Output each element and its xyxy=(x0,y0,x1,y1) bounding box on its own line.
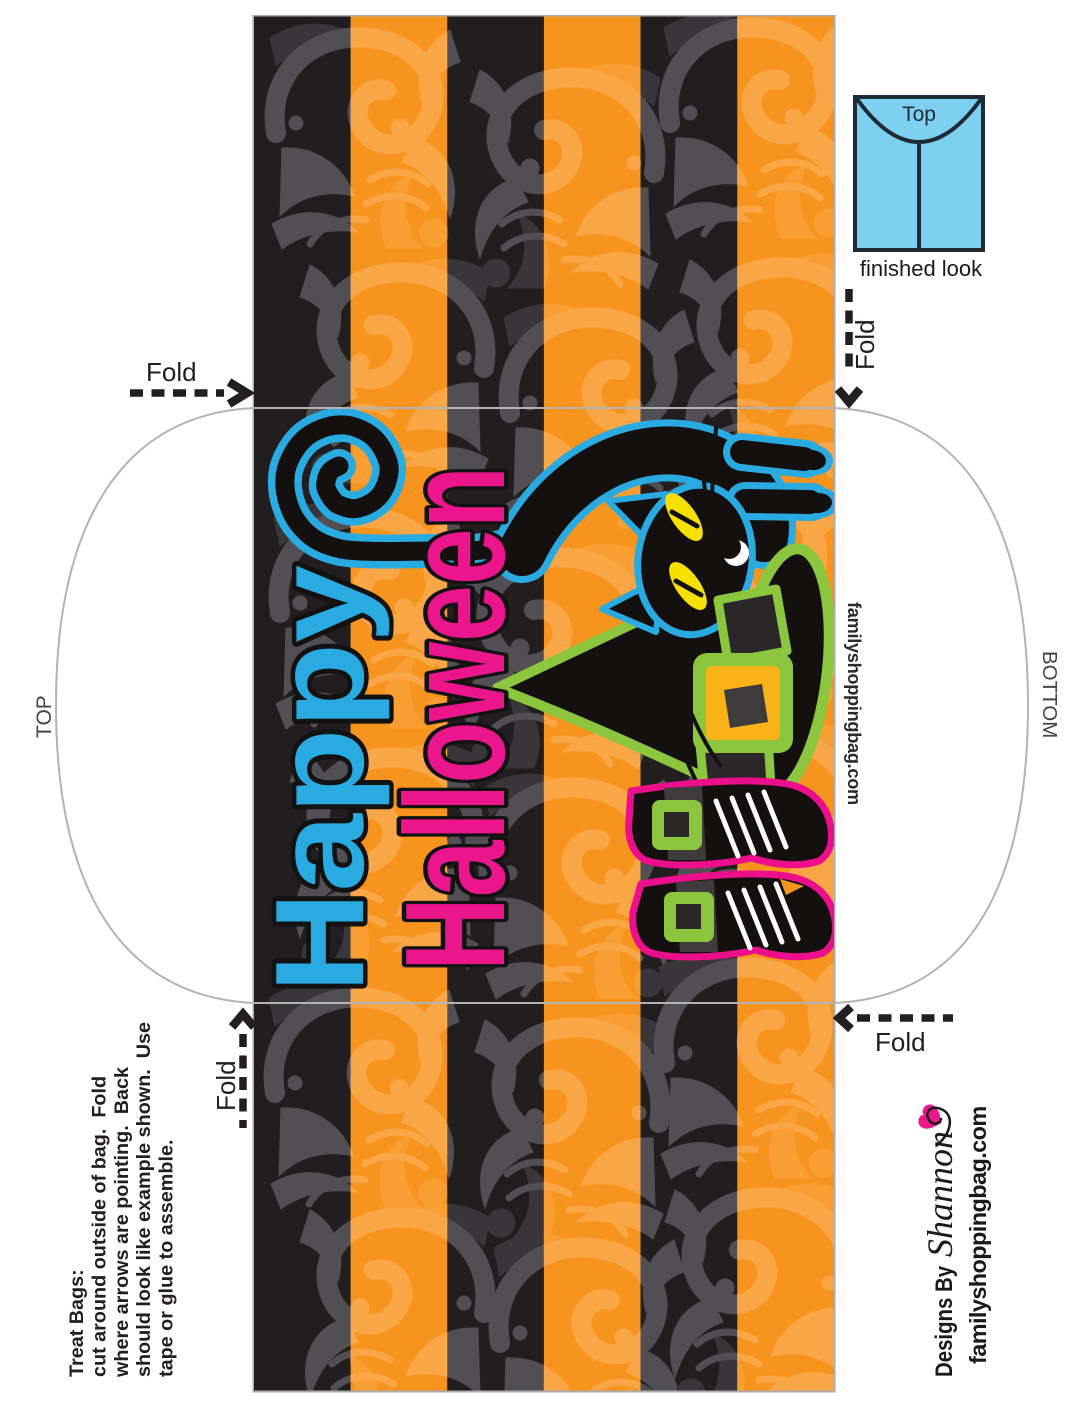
svg-text:Happy: Happy xyxy=(249,565,390,993)
svg-text:TOP: TOP xyxy=(33,695,56,738)
svg-text:where arrows are pointing. Ba: where arrows are pointing. Back xyxy=(111,1066,133,1378)
svg-text:cut around outside of bag. Fo: cut around outside of bag. Fold xyxy=(88,1076,110,1377)
svg-text:Fold: Fold xyxy=(875,1027,926,1057)
svg-text:familyshoppingbag.com: familyshoppingbag.com xyxy=(965,1106,991,1364)
svg-text:Fold: Fold xyxy=(146,357,197,387)
svg-text:finished look: finished look xyxy=(860,256,983,281)
svg-text:BOTTOM: BOTTOM xyxy=(1038,651,1061,738)
svg-text:Designs By: Designs By xyxy=(930,1265,957,1377)
svg-text:tape or glue to assemble.: tape or glue to assemble. xyxy=(156,1140,178,1377)
svg-text:Top: Top xyxy=(902,103,936,126)
svg-text:Shannon: Shannon xyxy=(920,1131,960,1257)
svg-text:Treat Bags:: Treat Bags: xyxy=(66,1269,88,1377)
svg-text:Fold: Fold xyxy=(850,319,880,370)
svg-text:Halloween: Halloween xyxy=(376,466,535,971)
svg-text:Fold: Fold xyxy=(211,1060,241,1111)
svg-text:familyshoppingbag.com: familyshoppingbag.com xyxy=(844,602,864,805)
svg-text:should look like example shown: should look like example shown. Use xyxy=(133,1022,155,1377)
